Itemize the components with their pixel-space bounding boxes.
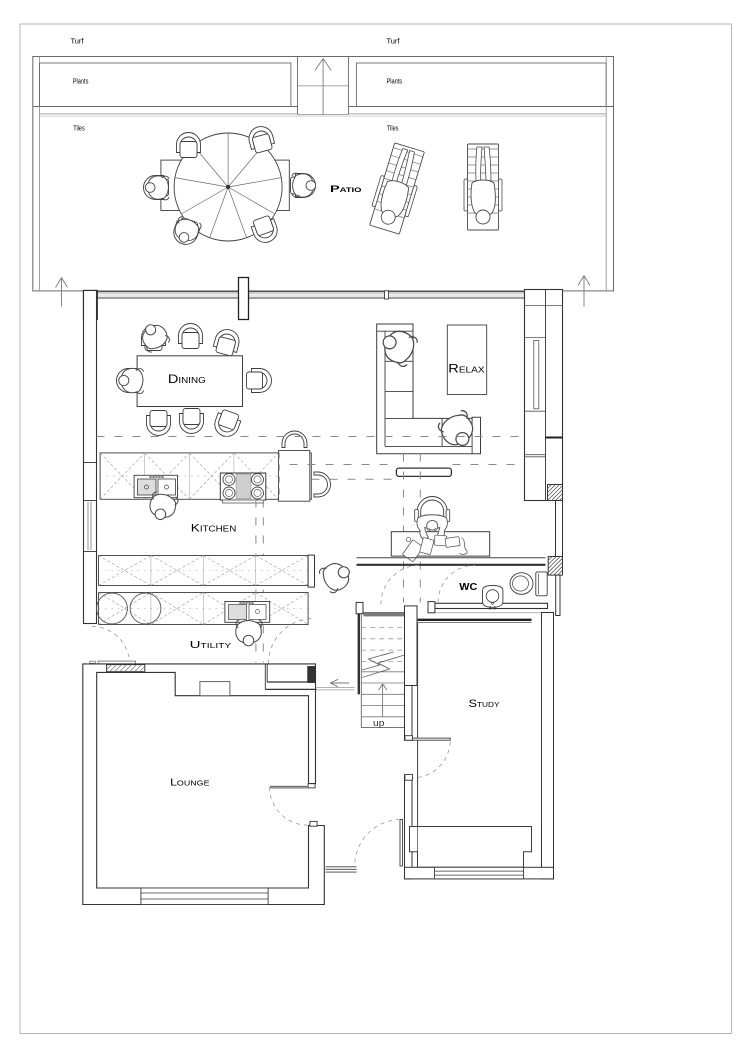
svg-text:up: up (373, 718, 385, 729)
svg-text:Plants: Plants (73, 77, 89, 86)
svg-text:Kitchen: Kitchen (191, 522, 237, 534)
svg-text:Lounge: Lounge (170, 778, 210, 789)
svg-text:WC: WC (459, 582, 477, 593)
svg-text:Tiles: Tiles (387, 124, 399, 133)
svg-text:Dining: Dining (168, 372, 206, 386)
svg-text:Relax: Relax (448, 363, 485, 376)
svg-text:Patio: Patio (330, 184, 362, 194)
svg-text:Turf: Turf (71, 37, 84, 46)
svg-text:Turf: Turf (387, 37, 400, 46)
svg-text:Tiles: Tiles (73, 124, 85, 133)
svg-text:Study: Study (469, 698, 500, 710)
svg-text:Utility: Utility (190, 640, 232, 651)
svg-text:Plants: Plants (387, 77, 403, 86)
